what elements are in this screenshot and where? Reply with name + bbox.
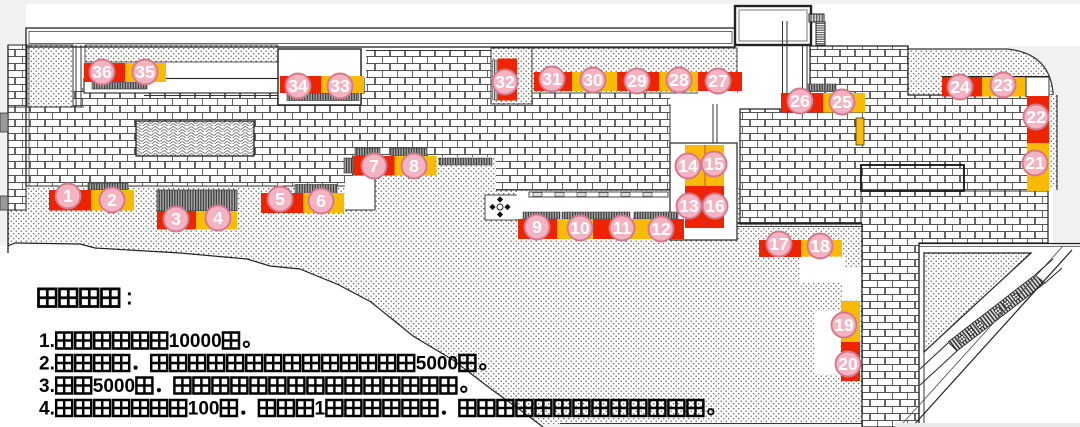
svg-text:3.: 3. — [39, 376, 55, 397]
svg-text:9: 9 — [532, 217, 542, 237]
svg-text:13: 13 — [679, 196, 699, 216]
svg-text:7: 7 — [369, 156, 379, 176]
svg-text:12: 12 — [651, 219, 671, 239]
svg-text:19: 19 — [834, 315, 854, 335]
svg-text:5000: 5000 — [416, 354, 458, 375]
svg-text:33: 33 — [330, 76, 350, 96]
svg-text:1.: 1. — [39, 331, 55, 352]
svg-text:27: 27 — [708, 71, 727, 91]
svg-text:2.: 2. — [39, 354, 55, 375]
svg-text:8: 8 — [409, 156, 419, 176]
svg-text:34: 34 — [288, 76, 308, 96]
svg-text:1: 1 — [63, 186, 73, 206]
svg-text:10: 10 — [570, 218, 590, 238]
svg-text:16: 16 — [705, 196, 725, 216]
svg-text:4: 4 — [213, 208, 223, 228]
svg-text:14: 14 — [678, 156, 698, 176]
svg-text:21: 21 — [1025, 153, 1045, 173]
svg-text:35: 35 — [135, 62, 155, 82]
svg-text:26: 26 — [790, 91, 810, 111]
svg-text:28: 28 — [669, 70, 689, 90]
svg-text:5: 5 — [275, 189, 285, 209]
svg-text:31: 31 — [542, 69, 562, 89]
svg-text:36: 36 — [92, 62, 112, 82]
svg-text:22: 22 — [1026, 107, 1046, 127]
svg-text:23: 23 — [993, 75, 1013, 95]
svg-text:100: 100 — [188, 399, 220, 420]
svg-text:4.: 4. — [39, 399, 55, 420]
svg-text:5000: 5000 — [93, 376, 135, 397]
svg-text:1: 1 — [315, 399, 326, 420]
svg-text:17: 17 — [769, 234, 788, 254]
svg-text:3: 3 — [171, 209, 181, 229]
svg-text:11: 11 — [613, 218, 632, 238]
svg-text:29: 29 — [627, 71, 647, 91]
svg-text:2: 2 — [107, 190, 117, 210]
svg-text:15: 15 — [704, 154, 724, 174]
svg-text:18: 18 — [810, 236, 830, 256]
svg-text:10000: 10000 — [169, 331, 222, 352]
svg-text:6: 6 — [316, 191, 326, 211]
svg-text:25: 25 — [832, 92, 852, 112]
svg-text:32: 32 — [495, 72, 515, 92]
svg-text:30: 30 — [583, 70, 603, 90]
svg-text:20: 20 — [838, 354, 858, 374]
svg-text:24: 24 — [950, 77, 970, 97]
